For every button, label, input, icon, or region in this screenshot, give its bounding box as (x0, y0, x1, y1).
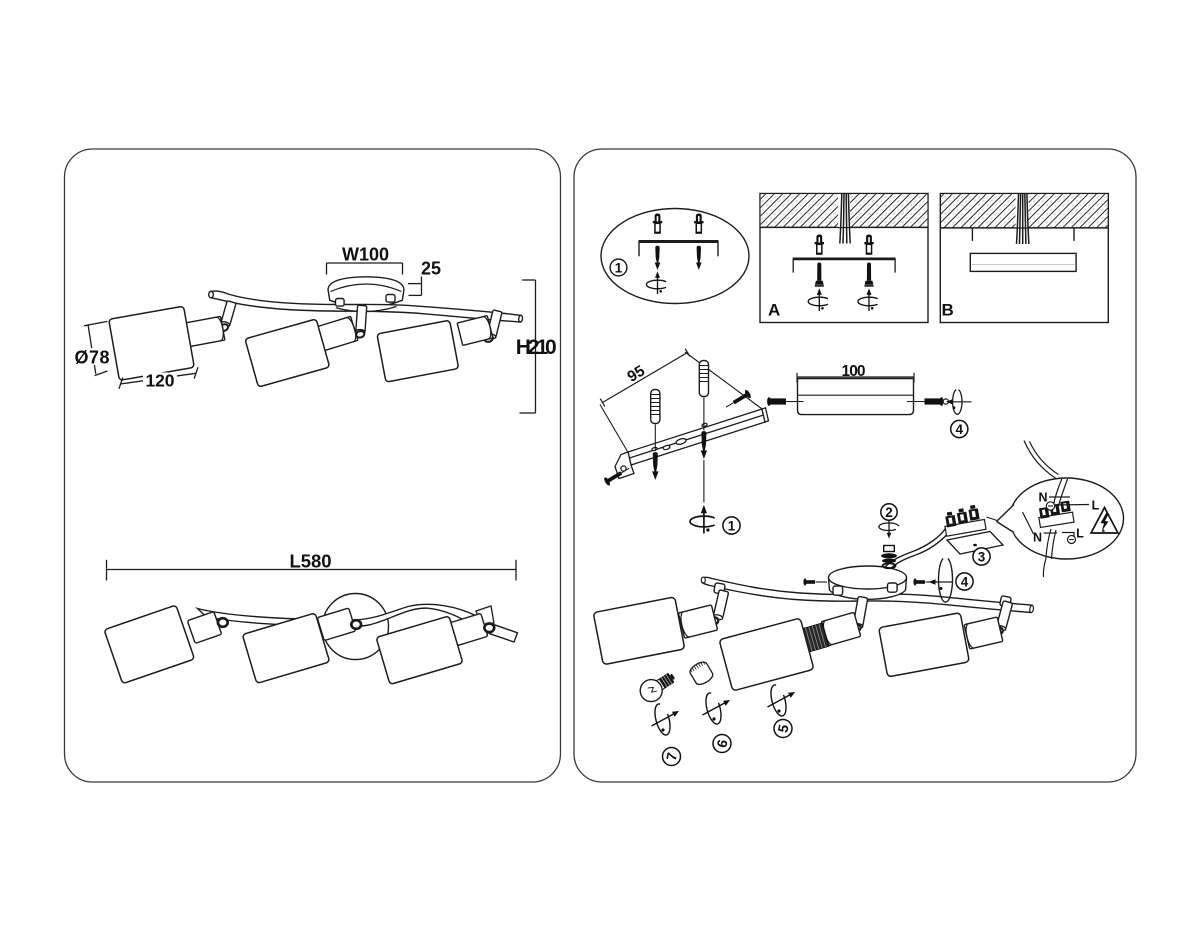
svg-text:Ø78: Ø78 (75, 348, 110, 368)
svg-text:N: N (1038, 491, 1047, 505)
svg-text:H210: H210 (516, 336, 557, 359)
svg-text:L580: L580 (290, 551, 332, 572)
svg-text:W100: W100 (342, 244, 389, 264)
svg-text:25: 25 (421, 259, 441, 279)
svg-text:3: 3 (978, 549, 986, 564)
svg-text:2: 2 (885, 505, 893, 520)
svg-text:1: 1 (728, 518, 736, 533)
svg-text:4: 4 (956, 422, 964, 437)
svg-text:L: L (1092, 499, 1100, 513)
svg-text:L: L (1076, 527, 1084, 541)
svg-text:120: 120 (146, 371, 175, 391)
svg-text:4: 4 (961, 574, 969, 589)
svg-text:A: A (768, 301, 780, 320)
svg-text:100: 100 (842, 363, 866, 380)
svg-text:B: B (942, 301, 954, 320)
svg-text:N: N (1033, 531, 1042, 545)
svg-text:1: 1 (615, 260, 623, 275)
